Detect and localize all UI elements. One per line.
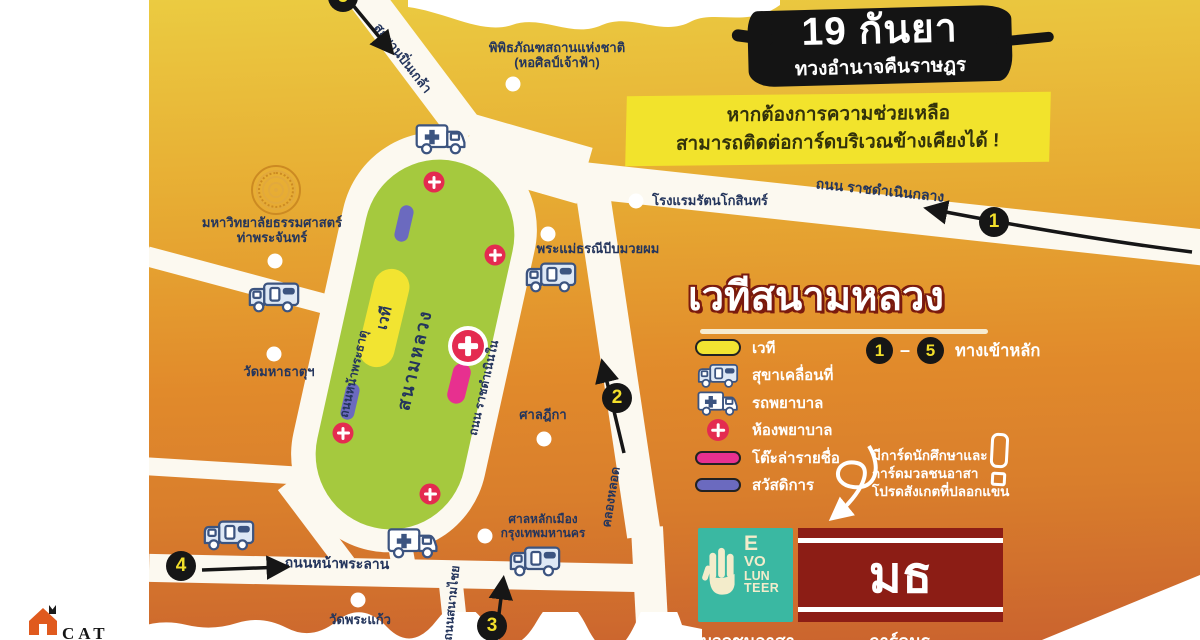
date-banner: 19 กันยา ทวงอำนาจคืนราษฎร bbox=[747, 5, 1013, 88]
help-banner: หากต้องการความช่วยเหลือ สามารถติดต่อการ์… bbox=[625, 92, 1051, 166]
date-title: 19 กันยา bbox=[801, 8, 958, 51]
thammasat-seal-icon bbox=[251, 165, 301, 215]
toilet-truck-icon bbox=[696, 362, 740, 389]
place-wat-phrakaew: วัดพระแก้ว bbox=[329, 613, 391, 628]
legend-row-ambulance: รถพยาบาล bbox=[692, 389, 840, 417]
place-dot bbox=[629, 194, 644, 209]
first-aid-marker bbox=[485, 245, 506, 266]
legend-row-stage: เวที bbox=[692, 334, 840, 362]
place-dot bbox=[537, 432, 552, 447]
ambulance-icon bbox=[696, 388, 740, 417]
roadlabel-na-phra-lan: ถนนหน้าพระลาน bbox=[285, 552, 390, 576]
stage-pill-icon bbox=[695, 339, 741, 356]
armband-caption: การ์ดมธ bbox=[869, 628, 931, 640]
evolunteer-wordmark: E VO LUN TEER bbox=[744, 533, 779, 595]
toilet-truck-icon bbox=[247, 280, 301, 314]
entrance-legend: 1 – 5 ทางเข้าหลัก bbox=[866, 337, 1040, 364]
first-aid-icon bbox=[707, 419, 729, 441]
watermark-brand: CAT bbox=[62, 624, 109, 640]
tu-guard-armband: มธ bbox=[798, 528, 1003, 622]
entrance-3-badge: 3 bbox=[477, 611, 507, 640]
evolunteer-logo: E VO LUN TEER bbox=[698, 528, 793, 622]
house-cat-icon bbox=[26, 604, 60, 638]
legend-row-toilet: สุขาเคลื่อนที่ bbox=[692, 362, 840, 390]
legend-row-signup: โต๊ะล่ารายชื่อ bbox=[692, 444, 840, 472]
armband-text: มธ bbox=[869, 550, 932, 600]
welfare-pill-icon bbox=[695, 478, 741, 492]
ambulance-icon bbox=[414, 120, 468, 156]
help-banner-line1: หากต้องการความช่วยเหลือ bbox=[726, 100, 950, 130]
place-hotel: โรงแรมรัตนโกสินทร์ bbox=[652, 194, 768, 209]
protest-map-infographic: เวที สนามหลวง มหาวิทยาลัยธรรมศาสตร์ ท่าพ… bbox=[0, 0, 1200, 640]
place-dot bbox=[268, 254, 283, 269]
legend-row-firstaid: ห้องพยาบาล bbox=[692, 417, 840, 445]
first-aid-marker bbox=[333, 423, 354, 444]
date-subtitle: ทวงอำนาจคืนราษฎร bbox=[794, 49, 966, 83]
stage-marker-label: เวที bbox=[370, 304, 399, 332]
first-aid-station-marker bbox=[452, 330, 484, 362]
toilet-truck-icon bbox=[524, 260, 578, 294]
three-finger-salute-icon bbox=[702, 546, 742, 604]
entrance-last-badge: 5 bbox=[917, 337, 944, 364]
place-thammasat: มหาวิทยาลัยธรรมศาสตร์ ท่าพระจันทร์ bbox=[202, 216, 342, 246]
watermark: CAT bbox=[26, 604, 109, 638]
entrance-2-badge: 2 bbox=[602, 383, 632, 413]
signup-pill-icon bbox=[695, 451, 741, 465]
entrance-legend-label: ทางเข้าหลัก bbox=[955, 338, 1040, 364]
toilet-truck-icon bbox=[202, 518, 256, 552]
torn-paper-left-margin bbox=[0, 0, 149, 640]
place-dot bbox=[478, 529, 493, 544]
legend-row-welfare: สวัสดิการ bbox=[692, 472, 840, 500]
place-dot bbox=[351, 593, 366, 608]
panel-title: เวทีสนามหลวง bbox=[688, 264, 944, 328]
entrance-range-dash: – bbox=[900, 340, 910, 361]
entrance-4-badge: 4 bbox=[166, 551, 196, 581]
help-banner-line2: สามารถติดต่อการ์ดบริเวณข้างเคียงได้ ! bbox=[676, 127, 1000, 158]
place-dot bbox=[506, 77, 521, 92]
place-city-pillar: ศาลหลักเมือง กรุงเทพมหานคร bbox=[501, 513, 586, 541]
exclamation-icon bbox=[989, 433, 1010, 487]
place-museum: พิพิธภัณฑสถานแห่งชาติ (หอศิลป์เจ้าฟ้า) bbox=[489, 41, 625, 71]
ambulance-icon bbox=[386, 524, 440, 560]
toilet-truck-icon bbox=[508, 544, 562, 578]
first-aid-marker bbox=[424, 172, 445, 193]
volunteer-caption: มวลชนอาสา bbox=[701, 628, 795, 640]
place-supreme-court: ศาลฎีกา bbox=[519, 408, 566, 423]
first-aid-marker bbox=[420, 484, 441, 505]
entrance-first-badge: 1 bbox=[866, 337, 893, 364]
place-wat-mahathat: วัดมหาธาตุฯ bbox=[243, 365, 314, 380]
place-mae-thorani: พระแม่ธรณีบีบมวยผม bbox=[537, 242, 660, 257]
entrance-1-badge: 1 bbox=[979, 207, 1009, 237]
place-dot bbox=[541, 227, 556, 242]
legend: เวที สุขาเคลื่อนที่ รถพยาบาล ห้องพยาบาล … bbox=[692, 334, 840, 499]
place-dot bbox=[267, 347, 282, 362]
